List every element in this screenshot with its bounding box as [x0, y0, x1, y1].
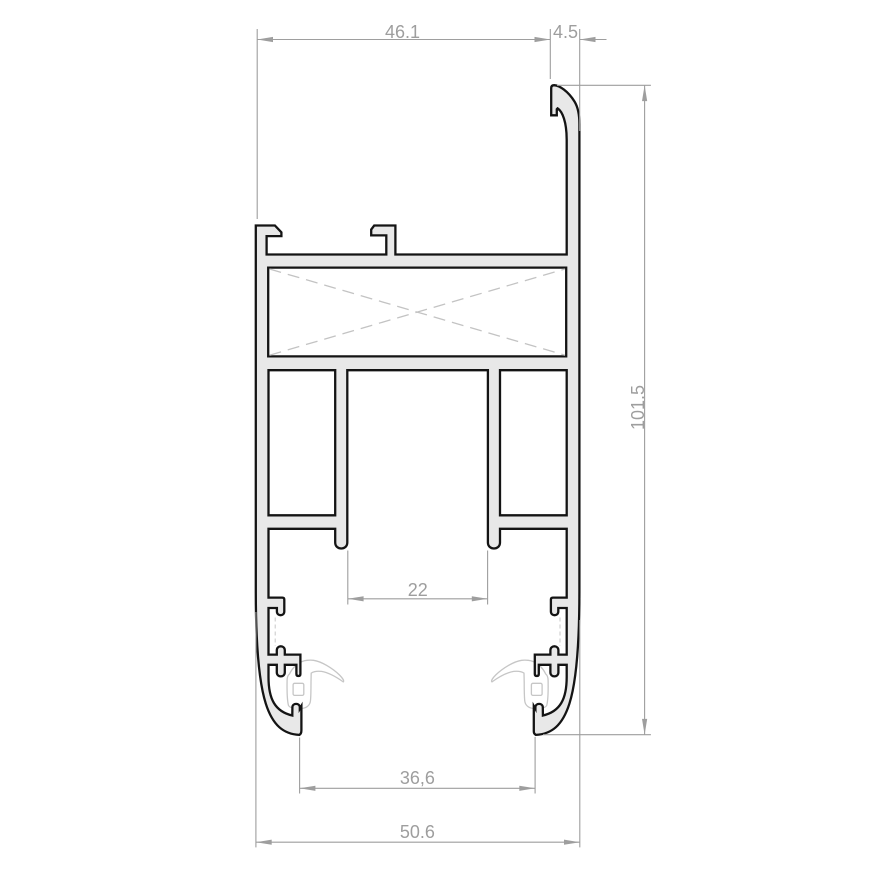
svg-text:50.6: 50.6: [400, 822, 435, 842]
svg-text:101.5: 101.5: [628, 385, 648, 430]
svg-text:36,6: 36,6: [400, 768, 435, 788]
svg-text:46.1: 46.1: [385, 22, 420, 42]
svg-text:4.5: 4.5: [553, 22, 578, 42]
svg-text:22: 22: [408, 580, 428, 600]
